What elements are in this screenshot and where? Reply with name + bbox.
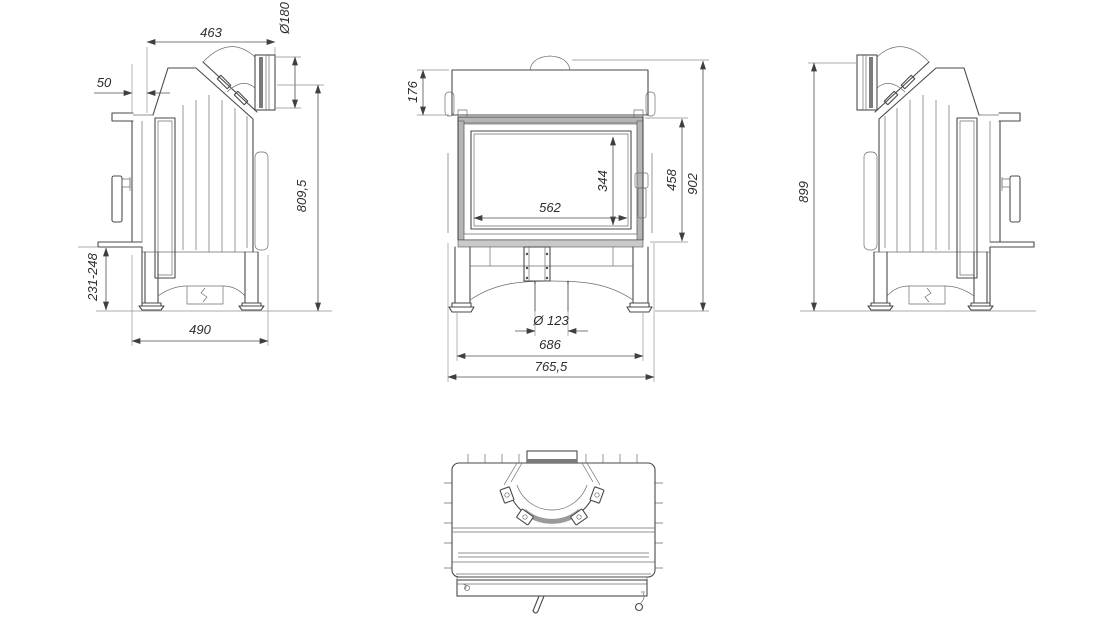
right-view-feet [868,252,993,310]
back-panel [255,152,268,250]
collar-tab [500,487,514,504]
fin-ticks-left [444,483,452,568]
fin-ticks-right [655,483,663,568]
front-bar [457,580,647,596]
door-frame-outer [458,117,643,240]
back-panel [864,152,877,250]
door-top-band [458,117,643,123]
center-pedestal [524,247,550,281]
hinge-ear-right [646,92,655,116]
top-panel-seams [452,528,655,574]
collar-tab [516,509,533,525]
flue-stub-band [527,459,577,463]
firebox-floor [470,247,633,266]
dim-total-width: 765,5 [535,359,568,374]
convection-fins [183,95,247,252]
top-flue-collar [500,451,604,525]
top-profile [153,68,253,252]
top-view [444,451,663,613]
dim-feet-span: 686 [539,337,561,352]
flue-outlet-strip [869,57,873,108]
left-side-view: 463 Ø180 50 809,5 231-248 490 [78,1,332,346]
collar-inner-arc [517,485,587,510]
convection-fins [885,95,949,252]
door-bottom-bar [458,240,643,247]
top-front-ledge [999,113,1020,121]
front-ledge [990,242,1034,247]
body-side-edges [448,153,652,233]
ext-d123 [535,284,568,336]
front-ledge [98,242,142,247]
right-view-body [864,68,1034,310]
collar-flares [504,463,600,485]
door-right-band [637,121,643,240]
hinge-ear-left [445,92,454,116]
dim-glass-width: 562 [539,200,561,215]
left-view-flue-elbow [203,47,275,112]
duct-upper-edge [875,62,929,112]
center-pedestal-inner [529,247,545,281]
flue-dome [530,56,570,70]
flue-outlet-face [857,55,877,110]
dim-hood-height: 176 [405,80,420,102]
flue-outlet-face [255,55,275,110]
right-view-dimensions: 899 [796,63,856,311]
base-arch-front [470,281,633,300]
duct-upper-edge [203,62,257,112]
flue-outlet-strip [259,57,263,108]
front-door [458,117,648,247]
right-view-flue-elbow [857,47,929,112]
elbow-outer-arc [877,47,929,62]
dim-flue-top-height: 899 [796,181,811,203]
dim-plinth-height: 231-248 [85,252,100,301]
dim-door-height: 458 [664,168,679,190]
dim-490: 490 [189,322,211,337]
door-frame-inner [464,124,637,234]
air-inlet-duct [535,281,568,311]
collar-tab [590,487,604,504]
dim-50: 50 [97,75,112,90]
base-arch [158,286,245,304]
top-front-bar [457,577,647,596]
hood-box [452,70,648,115]
front-base [449,247,652,312]
ext-176 [417,70,449,115]
dim-glass-height: 344 [595,170,610,192]
door-handle [112,176,130,222]
door-left-band [458,121,464,240]
front-view: 176 344 562 458 902 Ø 123 686 765,5 [405,56,709,382]
left-view-body [98,68,268,310]
top-profile [879,68,979,252]
fireplace-insert-orthographic-drawing: 463 Ø180 50 809,5 231-248 490 [0,0,1098,617]
duct-flange [234,91,247,104]
dim-463: 463 [200,25,222,40]
top-front-ledge [112,113,133,121]
front-legs [455,247,648,303]
elbow-outer-arc [203,47,255,62]
dim-air-inlet: Ø 123 [532,313,569,328]
air-control-lever [533,596,544,613]
dim-total-height: 902 [685,172,700,194]
ext-d180 [276,57,301,108]
collar-tab [570,509,587,525]
duct-flange [884,91,897,104]
right-side-view: 899 [796,47,1036,311]
left-view-dimensions: 463 Ø180 50 809,5 231-248 490 [78,1,324,346]
left-view-feet [139,252,264,310]
technical-drawing-page: 463 Ø180 50 809,5 231-248 490 [0,0,1098,617]
dim-flue-axis-height: 809,5 [294,179,309,212]
front-feet [449,303,652,312]
dim-flue-diameter: Ø180 [277,1,292,35]
base-arch [887,286,974,304]
door-handle [1002,176,1020,222]
front-view-dimensions: 176 344 562 458 902 Ø 123 686 765,5 [405,60,709,382]
